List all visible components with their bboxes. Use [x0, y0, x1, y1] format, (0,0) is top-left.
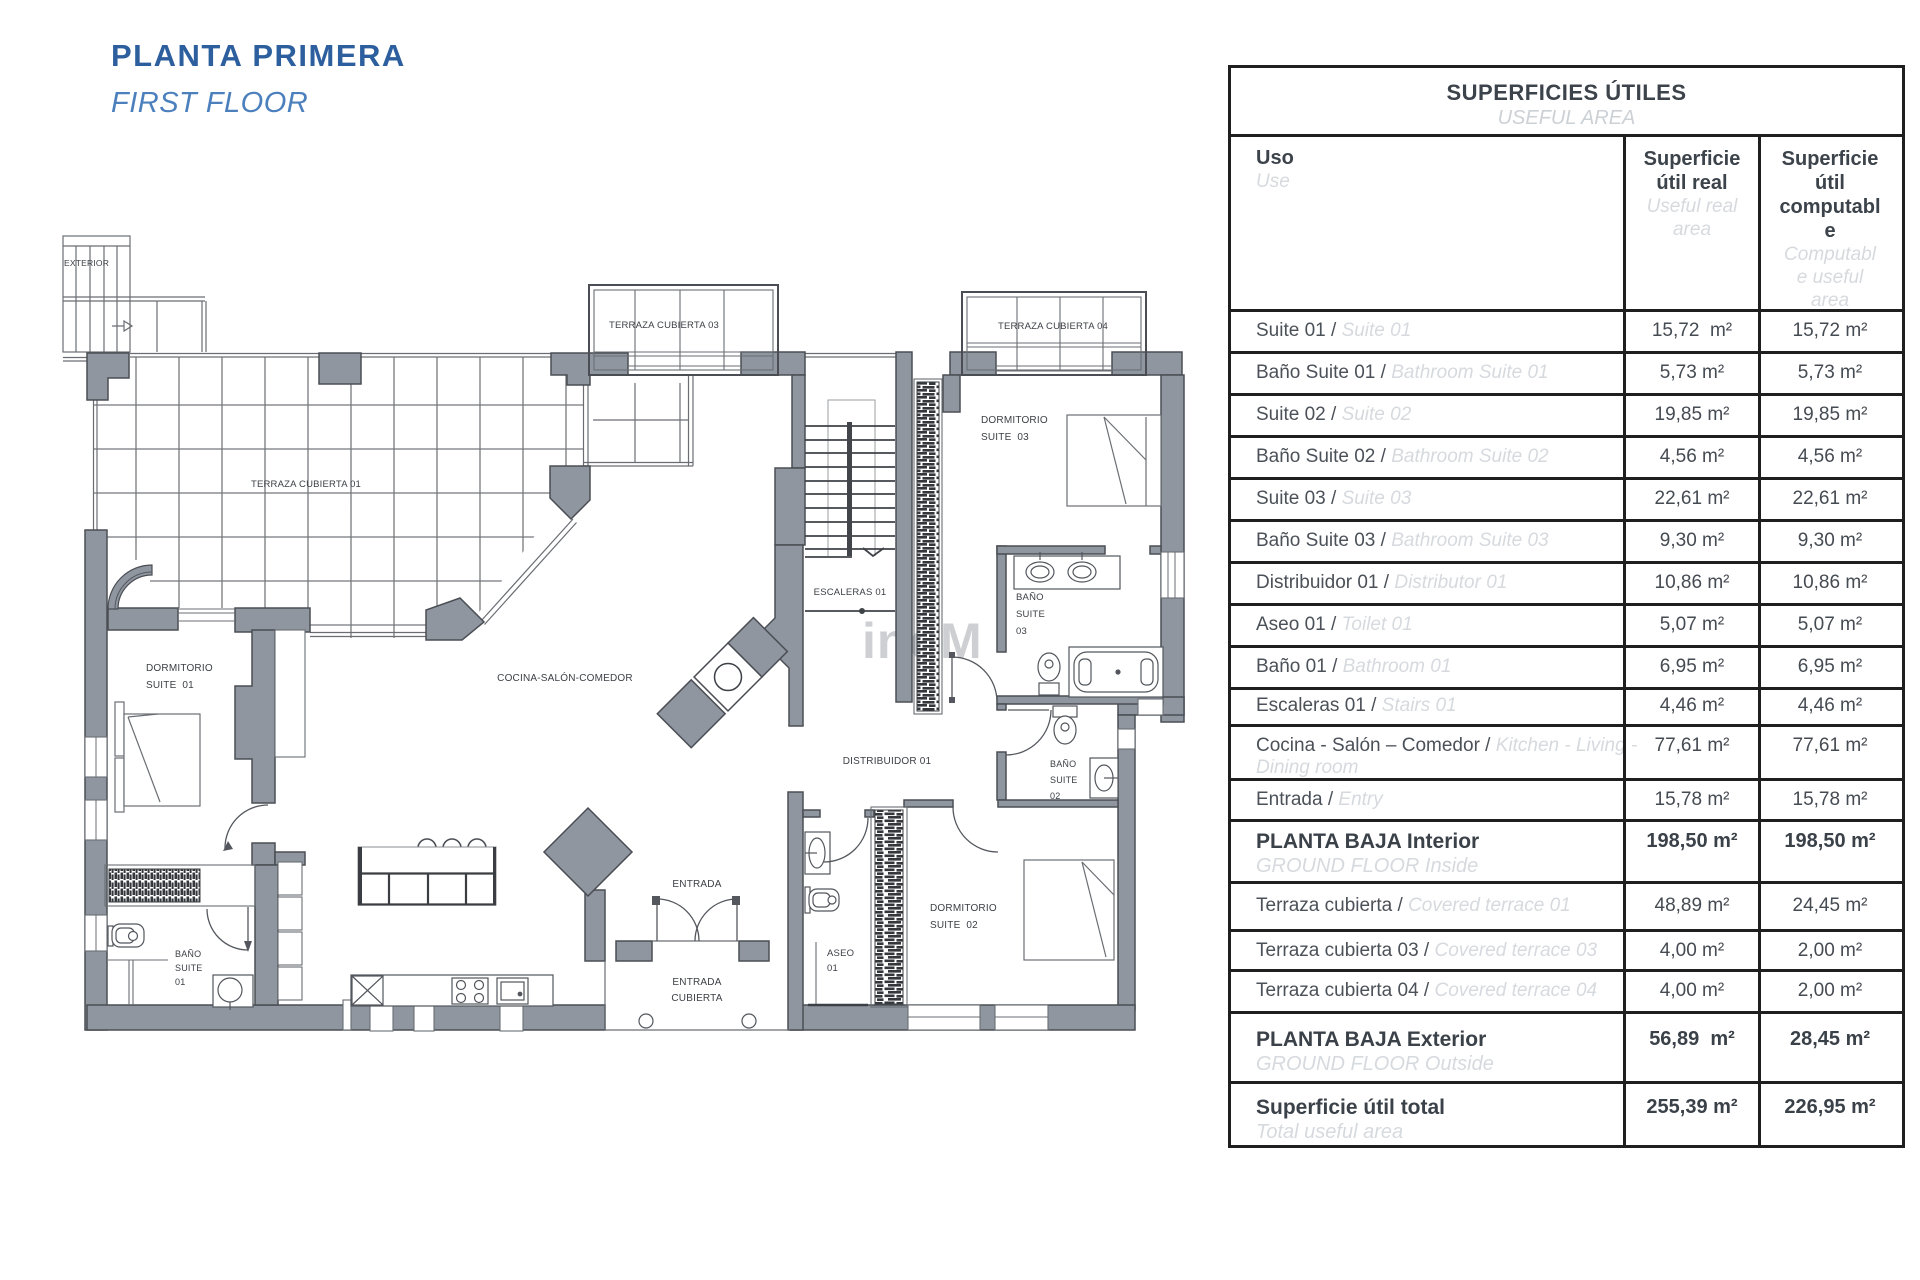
svg-text:SUITE: SUITE [1016, 609, 1045, 620]
svg-text:03: 03 [1016, 626, 1027, 637]
svg-text:DISTRIBUIDOR 01: DISTRIBUIDOR 01 [843, 756, 932, 767]
svg-text:DORMITORIO: DORMITORIO [146, 663, 213, 674]
svg-text:01: 01 [175, 977, 185, 987]
svg-text:TERRAZA CUBIERTA 04: TERRAZA CUBIERTA 04 [998, 321, 1108, 332]
svg-text:ESCALERAS 01: ESCALERAS 01 [814, 587, 887, 598]
svg-text:ASEO: ASEO [827, 948, 854, 959]
svg-text:SUITE 02: SUITE 02 [930, 920, 978, 931]
svg-text:CUBIERTA: CUBIERTA [671, 993, 722, 1004]
svg-text:ENTRADA: ENTRADA [672, 977, 721, 988]
svg-text:SUITE 03: SUITE 03 [981, 432, 1029, 443]
svg-text:DORMITORIO: DORMITORIO [981, 415, 1048, 426]
svg-text:EXTERIOR: EXTERIOR [64, 258, 109, 268]
svg-text:COCINA-SALÓN-COMEDOR: COCINA-SALÓN-COMEDOR [497, 671, 633, 684]
svg-text:BAÑO: BAÑO [1050, 759, 1076, 769]
svg-text:SUITE: SUITE [1050, 775, 1078, 785]
svg-text:02: 02 [1050, 791, 1060, 801]
svg-text:01: 01 [827, 963, 838, 974]
svg-text:TERRAZA CUBIERTA 03: TERRAZA CUBIERTA 03 [609, 320, 719, 331]
svg-text:DORMITORIO: DORMITORIO [930, 903, 997, 914]
svg-text:SUITE 01: SUITE 01 [146, 680, 194, 691]
svg-text:TERRAZA CUBIERTA 01: TERRAZA CUBIERTA 01 [251, 479, 361, 490]
svg-text:SUITE: SUITE [175, 963, 203, 973]
svg-text:BAÑO: BAÑO [1016, 592, 1044, 603]
svg-text:ENTRADA: ENTRADA [672, 879, 721, 890]
svg-text:BAÑO: BAÑO [175, 949, 201, 959]
